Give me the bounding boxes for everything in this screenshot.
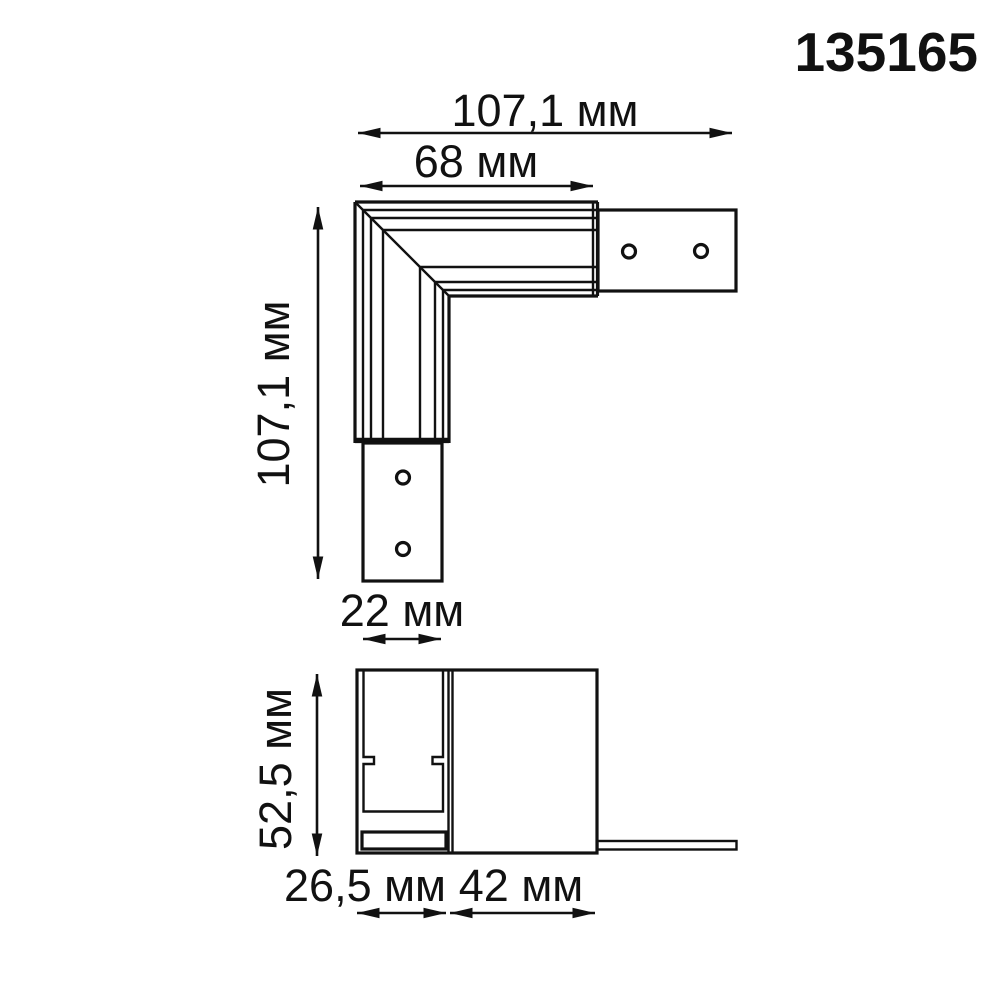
dimension-label: 52,5 мм	[250, 688, 301, 850]
dim-overall-width: 107,1 мм	[358, 85, 732, 136]
tab-plate	[598, 210, 736, 291]
dimension-label: 22 мм	[340, 585, 464, 636]
dim-overall-height: 107,1 мм	[248, 207, 318, 579]
dim-tab-width: 22 мм	[340, 585, 464, 639]
miter-line	[355, 202, 449, 296]
dimension-label: 107,1 мм	[452, 85, 639, 136]
technical-drawing-page: 135165 107,1 мм 68 мм 107,1 мм	[0, 0, 1000, 1000]
l-track-profile	[355, 202, 598, 443]
dimension-label: 107,1 мм	[248, 301, 299, 488]
product-code: 135165	[794, 21, 978, 83]
dim-side-height: 52,5 мм	[250, 674, 317, 856]
screw-hole	[623, 245, 636, 258]
dim-channel-width: 26,5 мм	[284, 860, 446, 913]
dim-body-width: 42 мм	[450, 860, 595, 913]
body-outline	[357, 670, 597, 853]
screw-hole	[397, 471, 410, 484]
top-view-l-connector: 107,1 мм 68 мм 107,1 мм	[248, 85, 736, 639]
screw-hole	[695, 245, 708, 258]
dimension-label: 68 мм	[414, 136, 538, 187]
tab-plate	[363, 443, 442, 581]
bottom-connector-tab	[363, 443, 442, 581]
dimension-label: 26,5 мм	[284, 860, 446, 911]
mounting-slot	[362, 832, 446, 849]
side-view: 52,5 мм 26,5 мм 42 мм	[250, 670, 737, 913]
screw-hole	[397, 543, 410, 556]
dim-profile-length: 68 мм	[360, 136, 593, 187]
dimension-drawing: 135165 107,1 мм 68 мм 107,1 мм	[0, 0, 1000, 1000]
contact-pin	[598, 841, 737, 850]
right-connector-tab	[598, 210, 736, 291]
dimension-label: 42 мм	[459, 860, 583, 911]
